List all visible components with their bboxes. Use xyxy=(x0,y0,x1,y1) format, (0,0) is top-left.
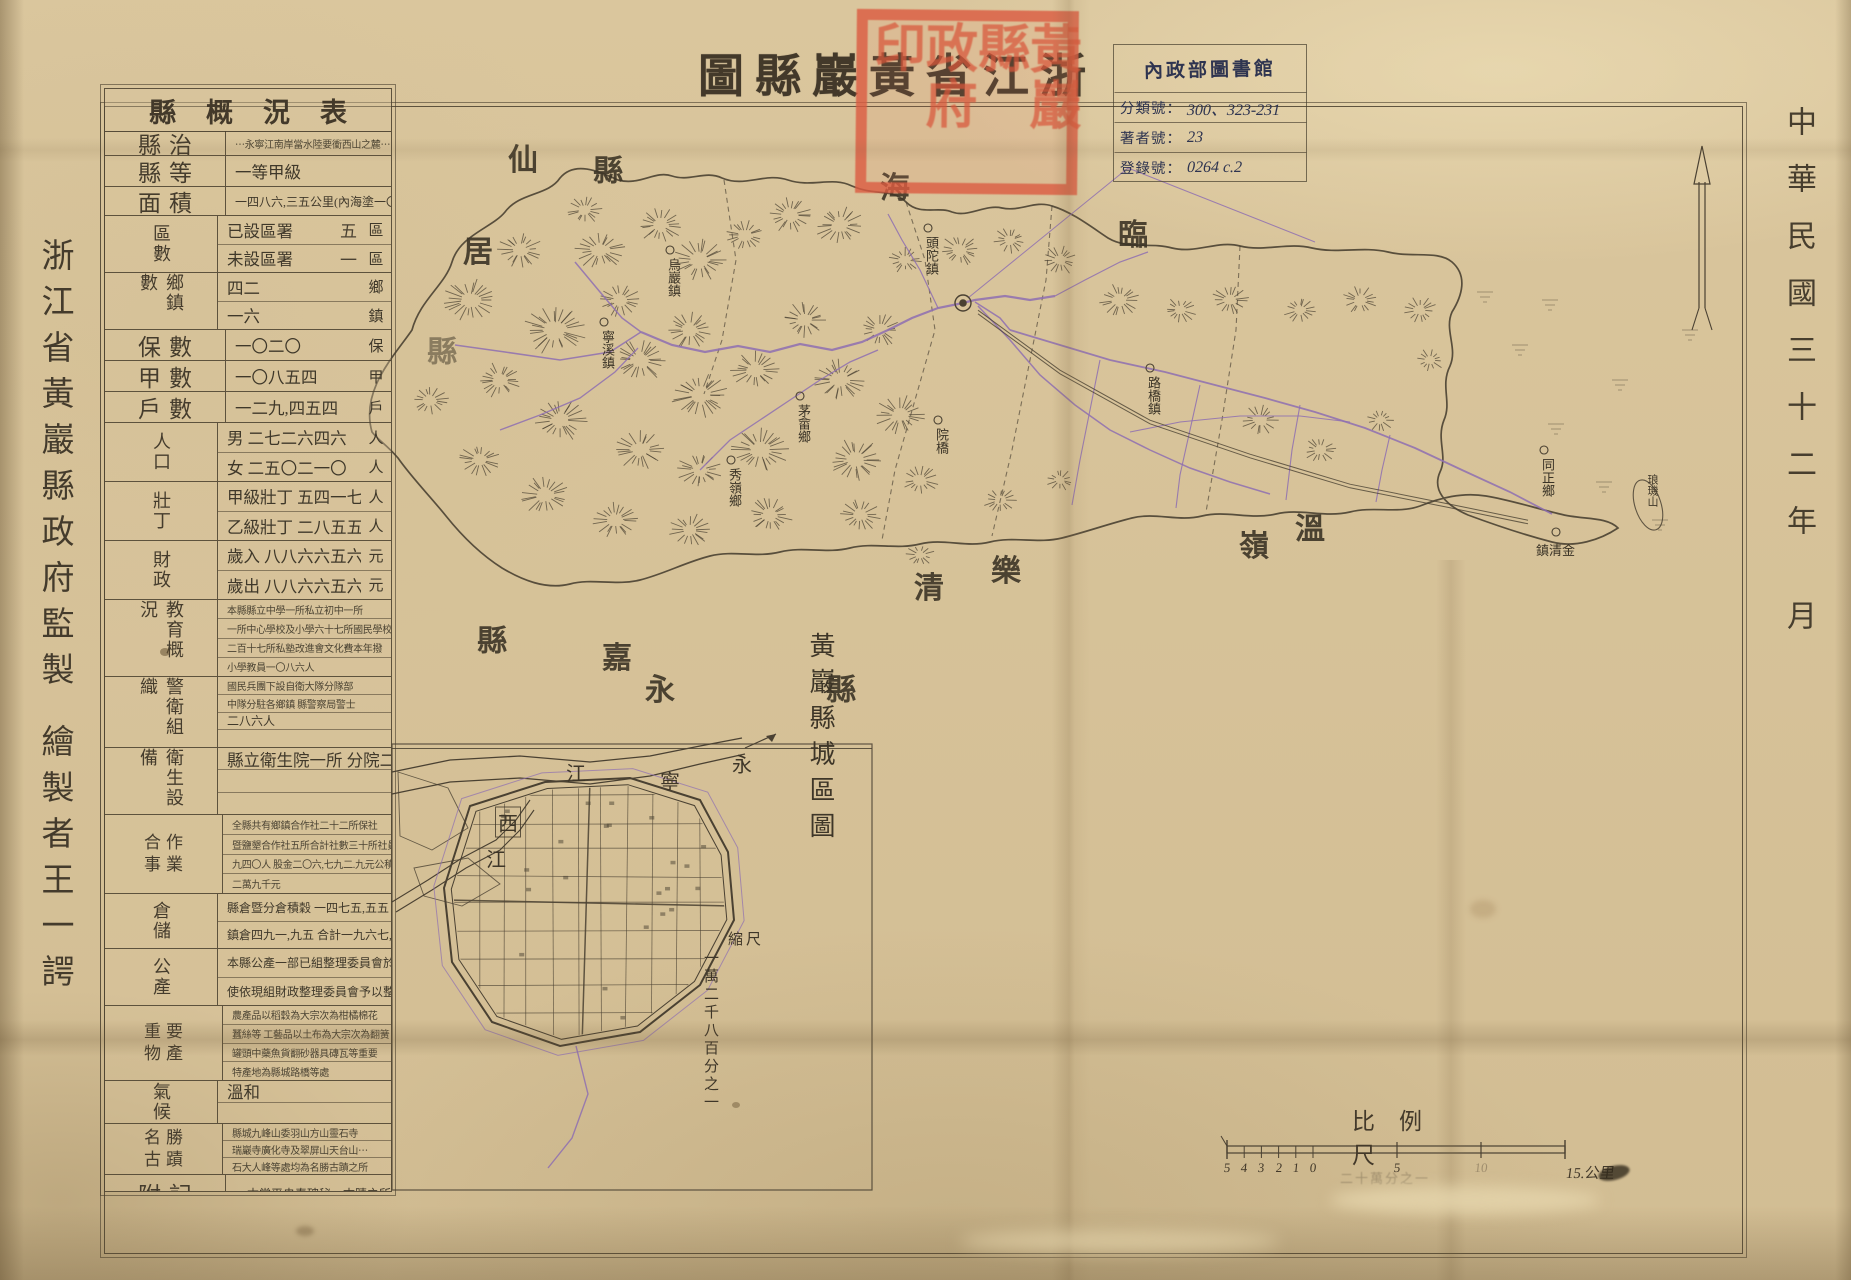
row-label: 面積 xyxy=(105,187,226,215)
row-line: 全縣共有鄉鎮合作社二十二所保社 xyxy=(223,815,391,835)
table-row: 甲數一〇八五四甲 xyxy=(105,360,391,391)
line-text: 乙級壯丁 二八五五三 xyxy=(218,514,361,538)
table-row: 人口男 二七二六四六人女 二五〇二一〇人 xyxy=(105,422,391,481)
date-inscription: 中華民國三十二年 xyxy=(1776,106,1820,562)
line-text: 二八六人 xyxy=(218,712,391,729)
line-text: 二萬九千元 xyxy=(223,876,391,891)
line-unit: 人 xyxy=(361,486,391,507)
table-row: 名勝古蹟縣城九峰山委羽山方山靈石寺瑞巖寺廣化寺及翠屏山天台山⋯石大人峰等處均為名… xyxy=(105,1123,391,1174)
row-label: 人口 xyxy=(105,423,218,481)
line-text: 特產地為縣城路橋等處 xyxy=(223,1064,391,1079)
library-stamp: 內政部圖書館 分類號： 300、323-231 著者號： 23 登錄號： 026… xyxy=(1113,44,1307,182)
line-text: 一所中心學校及小學六十七所國民學校 xyxy=(218,621,391,636)
line-unit: 人 xyxy=(361,427,391,448)
publisher-inscription: 浙江省黃巖縣政府監製 xyxy=(30,238,78,698)
line-text: 全縣共有鄉鎮合作社二十二所保社 xyxy=(223,817,391,832)
row-label: 重要物產 xyxy=(105,1006,223,1080)
row-line: 歲出 八八六六五六〇元 xyxy=(218,571,391,600)
row-label: 戶數 xyxy=(105,392,226,422)
official-red-seal: 黃巖縣 政府印 xyxy=(855,9,1079,195)
line-text: 二百十七所私塾改進會文化費本年撥 xyxy=(218,640,391,655)
row-line: 本縣公產一部已組整理委員會於四年 xyxy=(218,949,391,978)
line-text: 一〇八五四 xyxy=(226,364,361,388)
row-line: 男 二七二六四六人 xyxy=(218,423,391,453)
paper-shade xyxy=(0,0,24,1280)
row-line: 小學教員一〇八六人 xyxy=(218,658,391,676)
line-text: 中隊分駐各鄉鎮 縣警察局警士 xyxy=(218,696,391,711)
row-label: 保數 xyxy=(105,330,226,360)
line-unit: 戶 xyxy=(361,397,391,418)
line-value: 一 xyxy=(340,246,357,271)
row-line: 特產地為縣城路橋等處 xyxy=(223,1062,391,1080)
table-rows: 縣治⋯永寧江南岸當水陸要衝西山之麓⋯縣等一等甲級面積一四八六,三五公里(內海塗一… xyxy=(105,131,391,1191)
line-unit: 區 xyxy=(361,248,391,269)
seal-text-right: 黃巖縣 xyxy=(970,21,1076,184)
table-row: 衛生設備縣立衛生院一所 分院二所 xyxy=(105,747,391,814)
line-unit: 人 xyxy=(361,515,391,536)
line-text: 縣立衛生院一所 分院二所 xyxy=(218,747,391,771)
table-row: 區數已設區署五區未設區署一區 xyxy=(105,215,391,272)
line-text: 鎮倉四九一,九五 合計一九六七,五〇 xyxy=(218,926,391,943)
row-line: 縣倉暨分倉積穀 一四七五,五五 xyxy=(218,894,391,922)
line-text: ⋯本常平央春碑秘⋯古蹟之所 xyxy=(226,1185,391,1192)
row-line xyxy=(218,770,391,792)
paper-shade xyxy=(1835,0,1851,1280)
row-line: ⋯本常平央春碑秘⋯古蹟之所 xyxy=(226,1175,391,1191)
line-text: 女 二五〇二一〇 xyxy=(218,455,361,479)
table-row: 倉儲縣倉暨分倉積穀 一四七五,五五鎮倉四九一,九五 合計一九六七,五〇 xyxy=(105,893,391,948)
row-line: 使依現組財政整理委員會予以整理 xyxy=(218,978,391,1006)
row-line: 國民兵團下設自衛大隊分隊部 xyxy=(218,677,391,695)
row-label: 氣候 xyxy=(105,1081,218,1123)
row-label: 倉儲 xyxy=(105,894,218,948)
stamp-field-value: 0264 c.2 xyxy=(1187,159,1243,177)
line-text: 九四〇人 股金二〇六,七九二.九元公積金 xyxy=(223,856,391,871)
table-row: 合作事業全縣共有鄉鎮合作社二十二所保社暨鹽墾合作社五所合計社數三十所社員一九四〇… xyxy=(105,814,391,893)
row-label: 區數 xyxy=(105,216,218,272)
table-row: 警衛組織國民兵團下設自衛大隊分隊部中隊分駐各鄉鎮 縣警察局警士二八六人 xyxy=(105,676,391,747)
row-line xyxy=(218,1103,391,1124)
line-text: 暨鹽墾合作社五所合計社數三十所社員一 xyxy=(223,837,391,852)
row-line xyxy=(218,730,391,747)
stamp-field-value: 23 xyxy=(1187,129,1204,147)
line-unit: 元 xyxy=(361,545,391,566)
line-text: 男 二七二六四六 xyxy=(218,425,361,449)
line-unit: 元 xyxy=(361,574,391,595)
row-line: 四二鄉 xyxy=(218,273,391,302)
table-row: 壯丁甲級壯丁 五四一七一人乙級壯丁 二八五五三人 xyxy=(105,481,391,540)
table-row: 公產本縣公產一部已組整理委員會於四年使依現組財政整理委員會予以整理 xyxy=(105,948,391,1005)
row-line: ⋯永寧江南岸當水陸要衝西山之麓⋯ xyxy=(226,131,391,155)
line-value: 五 xyxy=(340,217,357,242)
row-label: 公產 xyxy=(105,949,218,1005)
line-text: 瑞巖寺廣化寺及翠屏山天台山⋯ xyxy=(223,1142,391,1157)
table-row: 教育概況本縣縣立中學一所私立初中一所一所中心學校及小學六十七所國民學校二百十七所… xyxy=(105,599,391,676)
row-line: 九四〇人 股金二〇六,七九二.九元公積金 xyxy=(223,855,391,875)
line-text: 一四八六,三五公里(內海塗一〇五,一七) xyxy=(226,193,391,210)
library-stamp-title: 內政部圖書館 xyxy=(1114,43,1307,94)
stamp-field: 著者號： 23 xyxy=(1113,122,1306,152)
county-overview-table: 縣概況表 縣治⋯永寧江南岸當水陸要衝西山之麓⋯縣等一等甲級面積一四八六,三五公里… xyxy=(104,88,392,1192)
seal-text-left: 政府印 xyxy=(866,20,972,183)
line-text: 四二 xyxy=(218,275,361,299)
row-label: 縣治 xyxy=(105,131,226,155)
map-sheet: 黃巖縣城區圖 琅璣山 縮尺 一萬二千八百分之一 比例尺 15.公里 二十萬分之一… xyxy=(0,0,1851,1280)
stamp-field-label: 分類號 xyxy=(1120,97,1167,118)
row-line: 溫和 xyxy=(218,1081,391,1103)
row-label: 衛生設備 xyxy=(105,748,218,814)
line-unit: 甲 xyxy=(361,366,391,387)
stamp-field-label: 著者號 xyxy=(1120,127,1167,148)
line-text: 未設區署 xyxy=(218,246,340,270)
stamp-field-value: 300、323-231 xyxy=(1187,96,1281,120)
row-line: 一〇二〇保 xyxy=(226,330,391,360)
row-line: 乙級壯丁 二八五五三人 xyxy=(218,512,391,541)
row-label: 警衛組織 xyxy=(105,677,218,747)
row-label: 甲數 xyxy=(105,361,226,391)
line-unit: 區 xyxy=(361,219,391,240)
row-line: 女 二五〇二一〇人 xyxy=(218,453,391,482)
table-title: 縣概況表 xyxy=(105,89,391,132)
line-text: 已設區署 xyxy=(218,218,340,242)
line-text: 本縣公產一部已組整理委員會於四年 xyxy=(218,954,391,971)
row-label: 縣等 xyxy=(105,156,226,186)
line-text: 一等甲級 xyxy=(226,159,391,183)
table-row: 附記⋯本常平央春碑秘⋯古蹟之所 xyxy=(105,1174,391,1191)
row-label: 財政 xyxy=(105,541,218,599)
row-line: 罐頭中藥魚貨翻砂器具磚瓦等重要 xyxy=(223,1044,391,1063)
table-row: 縣等一等甲級 xyxy=(105,155,391,186)
line-text: 歲入 八八六六五六〇 xyxy=(218,543,361,567)
row-label: 壯丁 xyxy=(105,482,218,540)
row-line: 二百十七所私塾改進會文化費本年撥 xyxy=(218,639,391,658)
row-label: 名勝古蹟 xyxy=(105,1124,223,1174)
table-row: 氣候溫和 xyxy=(105,1080,391,1123)
row-line: 一四八六,三五公里(內海塗一〇五,一七) xyxy=(226,187,391,215)
line-text: 蠶絲等 工藝品以土布為大宗次為翻簧 xyxy=(223,1026,391,1041)
row-line: 一所中心學校及小學六十七所國民學校 xyxy=(218,619,391,638)
line-unit: 鄉 xyxy=(361,276,391,297)
line-text: 縣倉暨分倉積穀 一四七五,五五 xyxy=(218,899,391,916)
row-line xyxy=(218,793,391,814)
table-row: 縣治⋯永寧江南岸當水陸要衝西山之麓⋯ xyxy=(105,131,391,155)
stamp-field-label: 登錄號 xyxy=(1120,157,1167,178)
row-line: 一二九,四五四戶 xyxy=(226,392,391,422)
table-row: 重要物產農產品以稻穀為大宗次為柑橘棉花蠶絲等 工藝品以土布為大宗次為翻簧罐頭中藥… xyxy=(105,1005,391,1080)
table-row: 鄉鎮數四二鄉一六鎮 xyxy=(105,272,391,329)
row-line: 縣立衛生院一所 分院二所 xyxy=(218,748,391,770)
line-text: 歲出 八八六六五六〇 xyxy=(218,573,361,597)
line-text: 本縣縣立中學一所私立初中一所 xyxy=(218,602,391,617)
line-text: 小學教員一〇八六人 xyxy=(218,659,391,674)
row-line: 本縣縣立中學一所私立初中一所 xyxy=(218,600,391,619)
line-text: 一六 xyxy=(218,303,361,327)
row-line: 一〇八五四甲 xyxy=(226,361,391,391)
row-line: 瑞巖寺廣化寺及翠屏山天台山⋯ xyxy=(223,1141,391,1158)
row-label: 鄉鎮數 xyxy=(105,273,218,329)
row-label: 附記 xyxy=(105,1175,226,1191)
row-line: 二八六人 xyxy=(218,713,391,731)
line-text: 溫和 xyxy=(218,1079,391,1103)
line-text: 石大人峰等處均為名勝古蹟之所 xyxy=(223,1159,391,1174)
stamp-field: 分類號： 300、323-231 xyxy=(1113,92,1306,122)
row-line: 暨鹽墾合作社五所合計社數三十所社員一 xyxy=(223,835,391,855)
line-text: 使依現組財政整理委員會予以整理 xyxy=(218,983,391,1000)
author-inscription: 繪製者王一諤 xyxy=(30,724,78,1000)
table-row: 面積一四八六,三五公里(內海塗一〇五,一七) xyxy=(105,186,391,215)
row-label: 教育概況 xyxy=(105,600,218,676)
row-line: 中隊分駐各鄉鎮 縣警察局警士 xyxy=(218,695,391,713)
row-line: 已設區署五區 xyxy=(218,216,391,245)
row-line: 鎮倉四九一,九五 合計一九六七,五〇 xyxy=(218,922,391,949)
row-line: 縣城九峰山委羽山方山靈石寺 xyxy=(223,1124,391,1141)
date-month: 月 xyxy=(1776,600,1820,630)
line-text: 罐頭中藥魚貨翻砂器具磚瓦等重要 xyxy=(223,1045,391,1060)
line-text: 一二九,四五四 xyxy=(226,395,361,419)
row-line: 石大人峰等處均為名勝古蹟之所 xyxy=(223,1158,391,1174)
line-text: 甲級壯丁 五四一七一 xyxy=(218,484,361,508)
row-line: 甲級壯丁 五四一七一人 xyxy=(218,482,391,512)
line-unit: 鎮 xyxy=(361,305,391,326)
row-label: 合作事業 xyxy=(105,815,223,893)
table-row: 戶數一二九,四五四戶 xyxy=(105,391,391,422)
row-line: 歲入 八八六六五六〇元 xyxy=(218,541,391,571)
line-text: ⋯永寧江南岸當水陸要衝西山之麓⋯ xyxy=(226,136,391,151)
line-unit: 人 xyxy=(361,456,391,477)
row-line: 一六鎮 xyxy=(218,302,391,330)
line-text: 農產品以稻穀為大宗次為柑橘棉花 xyxy=(223,1007,391,1022)
row-line: 蠶絲等 工藝品以土布為大宗次為翻簧 xyxy=(223,1025,391,1044)
line-text: 一〇二〇 xyxy=(226,333,361,357)
row-line: 一等甲級 xyxy=(226,156,391,186)
line-unit: 保 xyxy=(361,335,391,356)
table-row: 保數一〇二〇保 xyxy=(105,329,391,360)
row-line: 未設區署一區 xyxy=(218,245,391,273)
row-line: 二萬九千元 xyxy=(223,874,391,893)
line-text: 縣城九峰山委羽山方山靈石寺 xyxy=(223,1125,391,1140)
table-row: 財政歲入 八八六六五六〇元歲出 八八六六五六〇元 xyxy=(105,540,391,599)
row-line: 農產品以稻穀為大宗次為柑橘棉花 xyxy=(223,1006,391,1025)
stamp-field: 登錄號： 0264 c.2 xyxy=(1113,152,1306,182)
line-text: 國民兵團下設自衛大隊分隊部 xyxy=(218,678,391,693)
